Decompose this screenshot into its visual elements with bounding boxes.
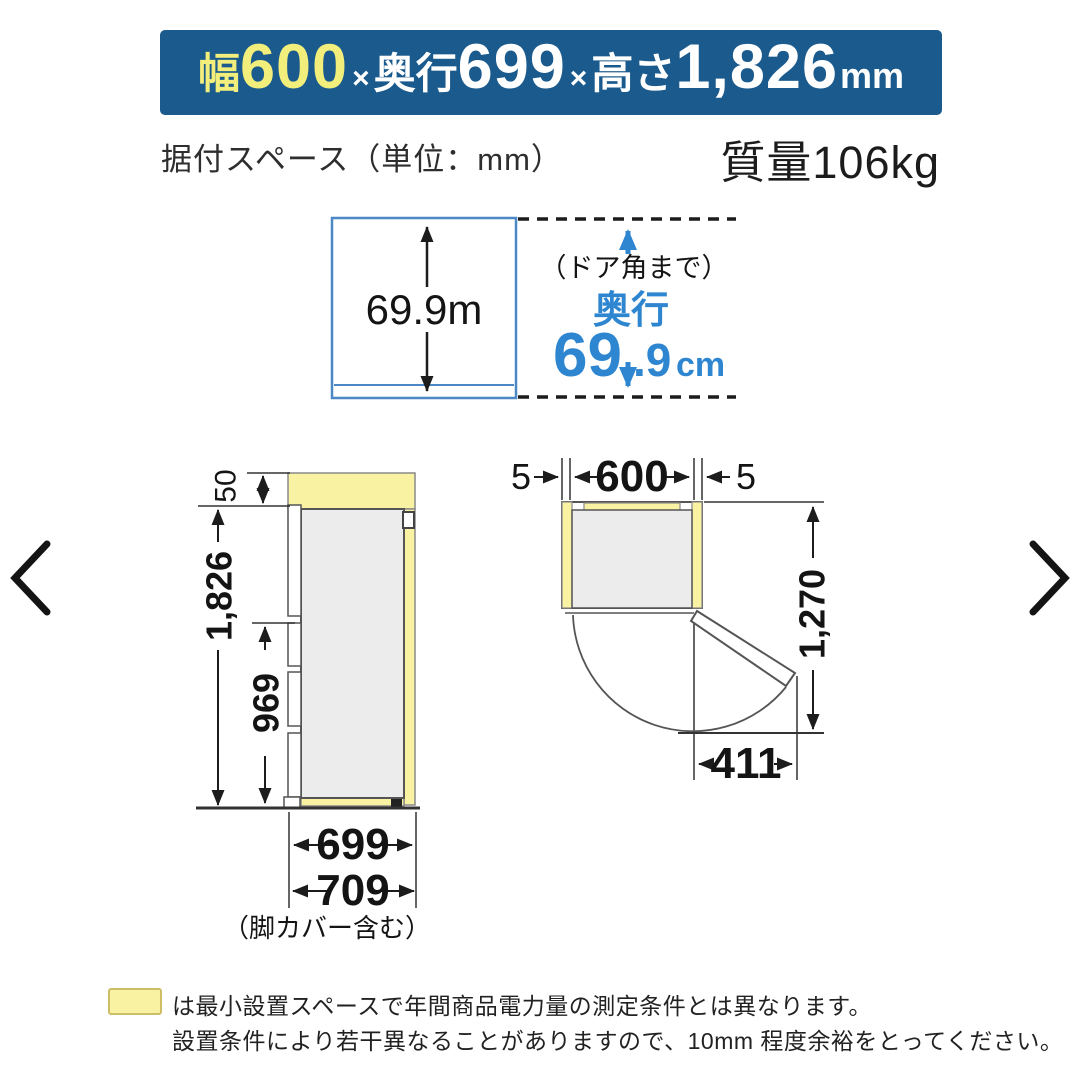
height-dim-label: 1,826	[199, 551, 240, 641]
width-dim-label: 600	[595, 452, 668, 501]
right-clearance-label: 5	[736, 456, 756, 497]
front-foot	[284, 797, 300, 808]
prev-arrow-icon[interactable]	[15, 544, 47, 612]
depth-dim-label: 699	[316, 820, 389, 869]
yellow-legend-swatch	[108, 988, 162, 1015]
footnote-line1: は最小設置スペースで年間商品電力量の測定条件とは異なります。	[172, 987, 872, 1021]
depth-value-big: 69	[553, 321, 622, 390]
left-clearance-label: 5	[511, 456, 531, 497]
top-view-diagram: 5 600 5 1,270 411	[511, 452, 833, 788]
next-arrow-icon[interactable]	[1033, 544, 1065, 612]
spec-diagram-page: 幅600×奥行699×高さ1,826mm 据付スペース（単位：mm） 質量106…	[0, 0, 1080, 1080]
fridge-body-side	[301, 509, 404, 798]
swing-depth-label: 1,270	[792, 569, 833, 659]
inner-depth-value: 69.9m	[366, 286, 483, 333]
door-corner-note: （ドア角まで）	[540, 253, 729, 283]
depth-unit: cm	[676, 346, 725, 384]
footnote-line2: 設置条件により若干異なることがありますので、10mm 程度余裕をとってください。	[172, 1022, 1063, 1056]
lower-height-dim-label: 969	[246, 673, 287, 733]
door-swing-arc	[573, 615, 786, 731]
legs-note: （脚カバー含む）	[223, 913, 431, 943]
rear-foot	[391, 799, 402, 807]
door-swing-width-label: 411	[711, 739, 782, 788]
side-view-diagram: 50 1,826 969 699 709 （脚カバー含む）	[196, 469, 431, 943]
diagram-canvas: 69.9m （ドア角まで） 奥行 69 .9 cm	[0, 0, 1080, 1080]
depth-value-small: .9	[633, 334, 671, 386]
depth-diagram: 69.9m （ドア角まで） 奥行 69 .9 cm	[332, 218, 736, 398]
open-door-panel	[691, 611, 795, 686]
fridge-door-segments	[288, 505, 301, 797]
top-clearance-label: 50	[210, 469, 243, 502]
fridge-body-top-inner	[572, 510, 692, 608]
hinge-box	[403, 512, 414, 528]
depth-with-legs-label: 709	[316, 866, 389, 915]
